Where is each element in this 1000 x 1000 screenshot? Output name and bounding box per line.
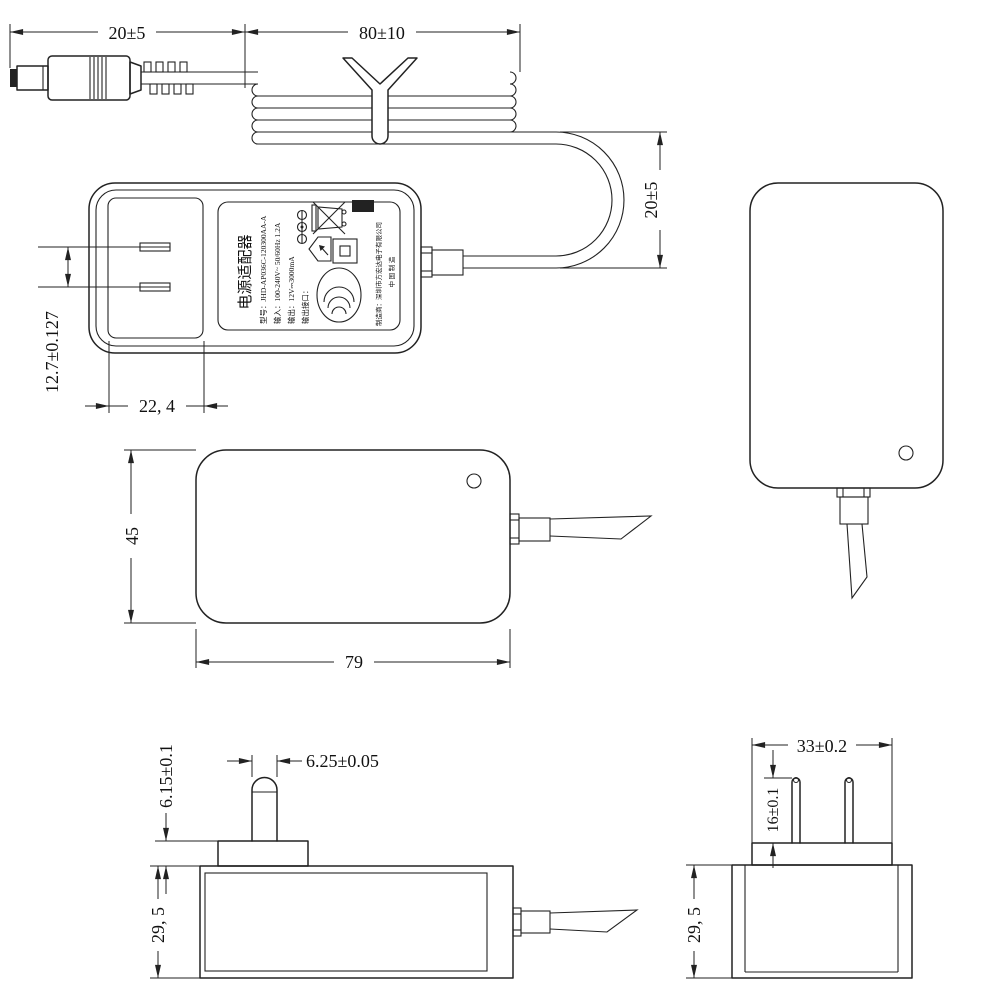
- back-cable-stub: [847, 524, 867, 598]
- end-blade-left: [792, 778, 800, 843]
- back-cable-bushing: [837, 488, 870, 524]
- cable-loop: [463, 132, 624, 268]
- end-blade-right: [845, 778, 853, 843]
- class-ii-double-square-icon: [333, 239, 357, 263]
- plug-neck: [130, 62, 141, 94]
- side-cable-stub: [550, 516, 651, 539]
- dim-plug-length: 20±5: [109, 23, 146, 43]
- adapter-front-view: 电源适配器 型号：JHD-AP036C-120300AA-A 输入：100-24…: [89, 183, 463, 353]
- dim-prong-pitch: 12.7±0.127: [42, 311, 62, 393]
- polarity-center-positive-icon: [298, 210, 307, 244]
- dim-platform-width: 33±0.2: [797, 736, 847, 756]
- label-input: 输入：100-240V~ 50/60Hz 1.2A: [272, 222, 282, 324]
- dim-side-thickness: 29, 5: [148, 907, 168, 943]
- back-vent-hole: [899, 446, 913, 460]
- plug-tip: [10, 69, 17, 87]
- top-dimension-chain: 20±5 80±10: [10, 22, 520, 88]
- dim-end-thickness: 29, 5: [684, 907, 704, 943]
- adapter-side-view: [196, 450, 651, 623]
- plug-recess: [108, 198, 203, 338]
- side-cable-bushing: [510, 514, 550, 544]
- indoor-use-house-icon: [309, 237, 331, 261]
- plug-strain-relief: [141, 62, 258, 94]
- adapter-bottom-view: [200, 777, 637, 978]
- adapter-technical-drawing-page: 20±5 80±10: [0, 0, 1000, 1000]
- label-manufacturer: 制造商：深圳市方宏达电子有限公司: [374, 222, 383, 326]
- base-height-dimension: 6.15±0.1: [155, 744, 218, 894]
- end-thickness-dimension: 29, 5: [684, 865, 732, 978]
- dim-plug-base-width: 22, 4: [139, 396, 175, 416]
- bottom-cable-bushing: [513, 908, 550, 936]
- end-body-outline: [732, 865, 912, 978]
- label-made-in: 中 国 制 造: [387, 256, 396, 287]
- dc-barrel-plug: [10, 56, 258, 100]
- loop-height-dimension: 20±5: [560, 132, 667, 268]
- dim-base-height: 6.15±0.1: [156, 744, 176, 808]
- weee-crossed-bin-icon: [312, 202, 346, 234]
- label-title: 电源适配器: [237, 234, 254, 309]
- adapter-back-view: [750, 183, 943, 598]
- ac-prong-lower: [140, 283, 170, 291]
- front-height-dimension: 45: [121, 450, 196, 623]
- bottom-body-outline: [200, 866, 513, 978]
- bottom-plug-platform: [218, 841, 308, 866]
- ccc-certification-icon: [317, 268, 361, 322]
- adapter-end-view: [732, 778, 912, 979]
- bottom-cable-stub: [550, 910, 637, 932]
- weee-black-bar: [352, 200, 374, 212]
- blade-length-dimension: 16±0.1: [764, 750, 792, 868]
- dim-loop-height: 20±5: [641, 182, 661, 219]
- technical-drawing-canvas: 20±5 80±10: [0, 0, 1000, 1000]
- blade-width-dimension: 6.25±0.05: [227, 751, 379, 777]
- product-label: 电源适配器 型号：JHD-AP036C-120300AA-A 输入：100-24…: [218, 200, 400, 330]
- dim-coil-length: 80±10: [359, 23, 405, 43]
- label-output-port: 输出接口：: [300, 287, 310, 325]
- side-thickness-dimension: 29, 5: [148, 866, 200, 978]
- dim-front-width: 79: [345, 652, 363, 672]
- dim-front-height: 45: [122, 527, 142, 545]
- side-vent-hole: [467, 474, 481, 488]
- back-body-outline: [750, 183, 943, 488]
- cable-tie-y: [343, 58, 417, 144]
- label-text-block: 电源适配器 型号：JHD-AP036C-120300AA-A 输入：100-24…: [237, 215, 396, 326]
- front-width-dimension: 79: [196, 629, 510, 672]
- bottom-blade: [252, 777, 277, 841]
- label-model: 型号：JHD-AP036C-120300AA-A: [259, 215, 268, 324]
- ac-prong-upper: [140, 243, 170, 251]
- side-body-outline: [196, 450, 510, 623]
- label-output: 输出：12V⎓3000mA: [286, 256, 296, 324]
- cable-bushing: [421, 247, 463, 277]
- plug-body: [48, 56, 130, 100]
- dim-blade-width: 6.25±0.05: [306, 751, 379, 771]
- dim-blade-length: 16±0.1: [765, 788, 782, 833]
